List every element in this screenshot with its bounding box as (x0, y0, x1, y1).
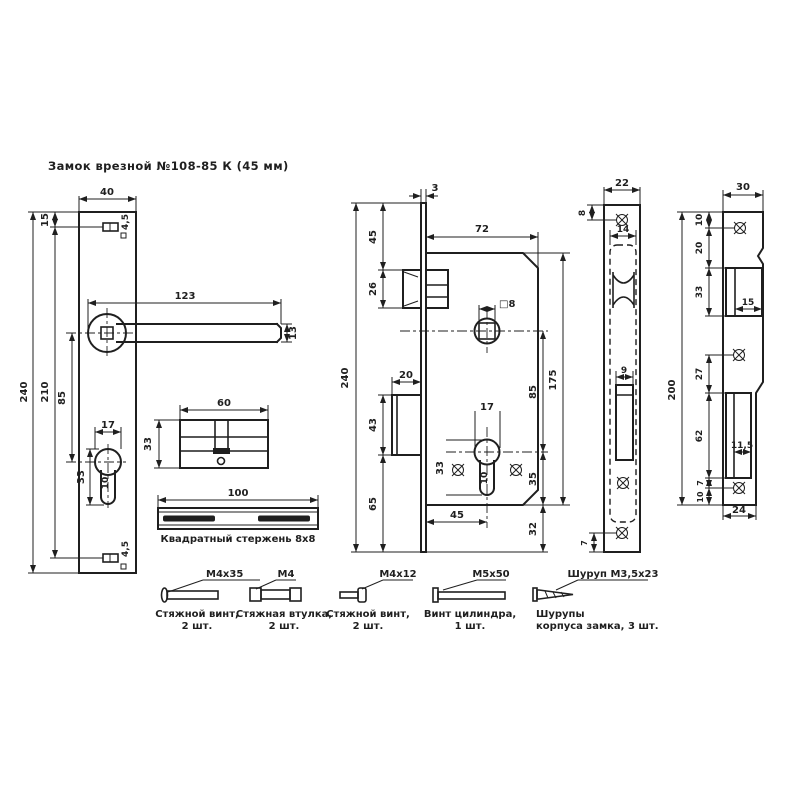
dim-bolt-height: 43 (368, 418, 379, 432)
view-strike-plate: 30 200 10 20 33 15 27 62 11,5 7 10 24 (667, 182, 763, 520)
fastener-1-size: М4х35 (206, 569, 243, 580)
dim-strike-to-latch: 20 (695, 242, 705, 255)
dim-cylinder-length: 60 (217, 398, 231, 409)
fastener-2-size: М4 (278, 569, 295, 580)
dim-faceplate-body-width: 14 (617, 225, 630, 235)
screw-hole-right (510, 464, 522, 476)
faceplate-screw-middle (617, 477, 629, 489)
view-cylinder: 60 33 (143, 398, 268, 468)
fastener-coupling-screw-short: М4х12 Стяжной винт, 2 шт. (326, 569, 416, 632)
strike-screw-bottom (733, 482, 745, 494)
dim-lever-length: 123 (175, 291, 196, 302)
fastener-5-caption: Шурупы (536, 609, 585, 620)
drawing-title: Замок врезной №108-85 К (45 мм) (48, 159, 289, 173)
dim-strike-height: 200 (667, 380, 678, 401)
dim-plate-height: 240 (19, 382, 30, 403)
dim-bottom-section: 65 (368, 497, 379, 511)
dim-cyl-height: 33 (435, 461, 446, 475)
dim-top-hole-dia: 4,5 (121, 214, 131, 230)
dim-strike-bottom: 10 (696, 491, 705, 503)
fastener-wood-screw: Шуруп М3,5х23 Шурупы корпуса замка, 3 шт… (533, 569, 659, 632)
dim-key-width: 17 (101, 420, 115, 431)
dim-cyl-to-bottom: 35 (528, 472, 539, 486)
fastener-2-caption: Стяжная втулка, (236, 609, 332, 620)
dim-cylinder-height: 33 (143, 437, 154, 451)
view-lock-body: 3 240 45 26 20 43 65 72 □8 17 33 10 45 8… (340, 183, 570, 552)
dim-top-hole: 15 (40, 213, 51, 227)
dim-strike-top-width: 30 (736, 182, 750, 193)
fastener-1-caption: Стяжной винт, (155, 609, 239, 620)
fastener-3-qty: 2 шт. (353, 621, 384, 632)
dim-bottom-hole-dia: 4,5 (121, 541, 131, 557)
dim-spindle-square: □8 (499, 299, 515, 310)
dim-body-total-height: 240 (340, 368, 351, 389)
dim-faceplate-slot: 9 (621, 366, 627, 376)
fastener-1-qty: 2 шт. (182, 621, 213, 632)
dim-strike-latch-width: 15 (742, 298, 755, 308)
dim-strike-bolt-to-screw: 7 (696, 480, 705, 486)
dim-faceplate-top: 8 (578, 210, 588, 216)
fastener-4-size: М5х50 (472, 569, 509, 580)
dim-strike-gap: 27 (695, 368, 705, 381)
view-square-rod: 100 Квадратный стержень 8х8 (158, 488, 318, 545)
fastener-5-qty: корпуса замка, 3 шт. (536, 621, 659, 632)
dim-backset: 45 (450, 510, 464, 521)
dim-cyl-stem: 10 (480, 472, 490, 485)
faceplate-screw-bottom (616, 527, 628, 539)
strike-screw-middle (733, 349, 745, 361)
view-faceplate: 22 8 14 9 7 (578, 178, 640, 552)
rod-caption: Квадратный стержень 8х8 (161, 534, 316, 545)
fastener-5-size: Шуруп М3,5х23 (568, 569, 659, 580)
dim-hole-span: 210 (40, 382, 51, 403)
dim-strike-bolt-width: 11,5 (731, 441, 753, 451)
dim-key-height: 33 (76, 470, 87, 484)
dim-strike-bottom-width: 24 (732, 505, 746, 516)
lock-drawing: Замок врезной №108-85 К (45 мм) (0, 0, 800, 800)
fastener-2-qty: 2 шт. (269, 621, 300, 632)
fastener-3-size: М4х12 (379, 569, 416, 580)
dim-bottom-offset: 32 (528, 522, 539, 536)
dim-cyl-width: 17 (480, 402, 494, 413)
dim-rod-length: 100 (228, 488, 249, 499)
fastener-4-caption: Винт цилиндра, (424, 609, 516, 620)
dim-strike-top: 10 (695, 214, 705, 227)
dim-latch-height: 26 (368, 282, 379, 296)
drawing-page: Замок врезной №108-85 К (45 мм) (0, 0, 800, 800)
dim-faceplate-bottom: 7 (580, 540, 589, 546)
dim-strike-bolt-height: 62 (695, 430, 705, 443)
fastener-3-caption: Стяжной винт, (326, 609, 410, 620)
dim-spindle-to-cyl: 85 (528, 385, 539, 399)
fastener-cylinder-screw: М5х50 Винт цилиндра, 1 шт. (424, 569, 516, 632)
dim-handle-to-key: 85 (57, 391, 68, 405)
dim-key-stem: 10 (101, 477, 111, 490)
dim-plate-width: 40 (100, 187, 114, 198)
dim-body-height: 175 (548, 370, 559, 391)
fastener-coupling-screw-long: М4х35 Стяжной винт, 2 шт. (155, 569, 260, 632)
dim-bolt-throw: 20 (399, 370, 413, 381)
dim-top-to-latch: 45 (368, 230, 379, 244)
dim-strike-latch-height: 33 (695, 286, 705, 299)
strike-screw-top (734, 222, 746, 234)
dim-lever-width: 13 (288, 326, 299, 340)
screw-hole-left (452, 464, 464, 476)
fastener-coupling-sleeve: М4 Стяжная втулка, 2 шт. (236, 569, 332, 632)
dim-faceplate-width: 22 (615, 178, 629, 189)
fastener-4-qty: 1 шт. (455, 621, 486, 632)
dim-face-thickness: 3 (432, 183, 439, 194)
dim-body-depth: 72 (475, 224, 489, 235)
